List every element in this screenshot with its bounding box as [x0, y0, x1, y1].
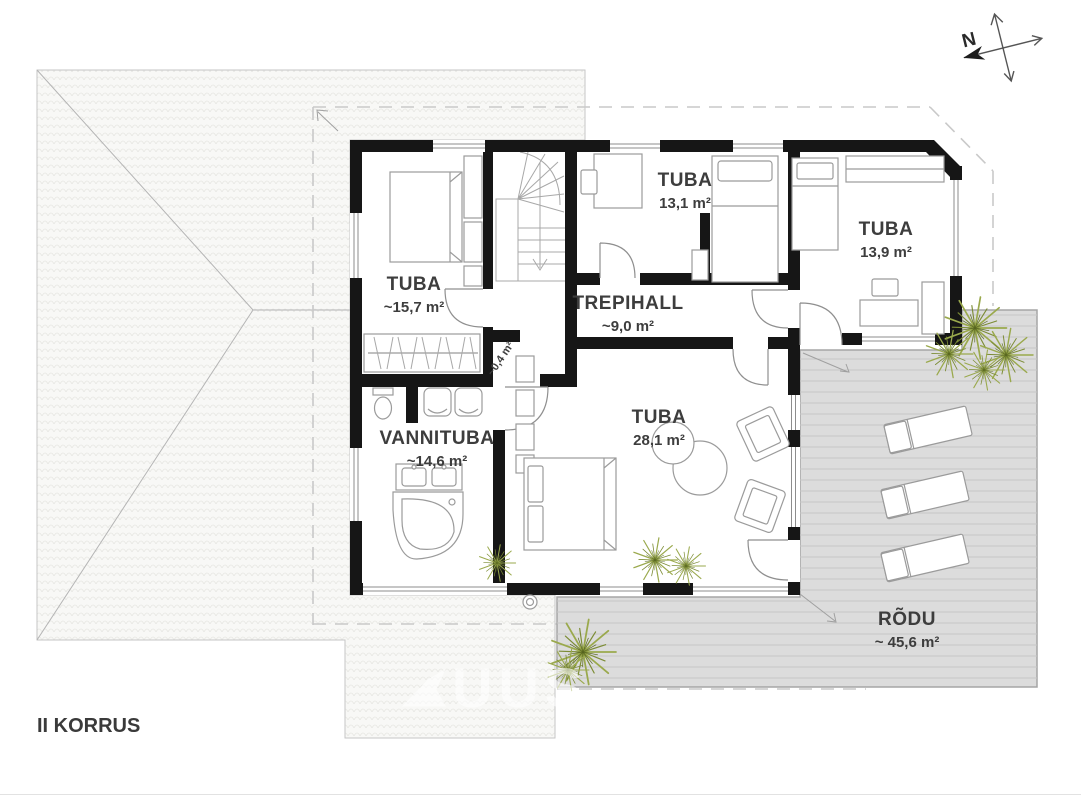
room-label-vannituba: VANNITUBA ~14,6 m²	[380, 427, 495, 471]
room-name: VANNITUBA	[380, 427, 495, 452]
room-label-tuba-157: TUBA ~15,7 m²	[384, 273, 444, 317]
floor-plan-page: N TUBA ~15,7 m² TUBA 13,1 m² TUBA 13,9 m…	[0, 0, 1081, 800]
shelf-icon	[846, 156, 944, 182]
room-area: 13,1 m²	[659, 194, 711, 214]
room-label-tuba-139: TUBA 13,9 m²	[859, 218, 914, 262]
room-name: TUBA	[859, 218, 914, 243]
room-area: ~9,0 m²	[602, 317, 654, 337]
floor-title: II KORRUS	[37, 711, 219, 741]
room-name: RÕDU	[878, 608, 936, 633]
room-area: 13,9 m²	[860, 243, 912, 263]
room-area: 28,1 m²	[633, 431, 685, 451]
title-block: II KORRUS netopind ~ 94,8 m² /illustrats…	[37, 651, 219, 800]
compass-n-label: N	[960, 29, 978, 53]
room-label-rodu: RÕDU ~ 45,6 m²	[875, 608, 940, 652]
toilet-icon	[373, 388, 393, 419]
room-area: ~14,6 m²	[407, 452, 467, 472]
room-label-trepihall: TREPIHALL ~9,0 m²	[572, 292, 683, 336]
north-compass: N	[955, 4, 1050, 91]
room-area: ~ 45,6 m²	[875, 633, 940, 653]
room-label-tuba-281: TUBA 28,1 m²	[632, 406, 687, 450]
room-label-tuba-131: TUBA 13,1 m²	[658, 169, 713, 213]
closet-icon	[516, 356, 534, 473]
room-name: TUBA	[632, 406, 687, 431]
room-name: TUBA	[387, 273, 442, 298]
bed-icon	[524, 458, 616, 550]
room-name: TREPIHALL	[572, 292, 683, 317]
lounger-icon	[881, 406, 973, 582]
room-area: ~15,7 m²	[384, 298, 444, 318]
page-bottom-rule	[0, 794, 1081, 795]
bed-icon	[792, 158, 838, 250]
room-name: TUBA	[658, 169, 713, 194]
chimney-icon	[523, 595, 537, 609]
